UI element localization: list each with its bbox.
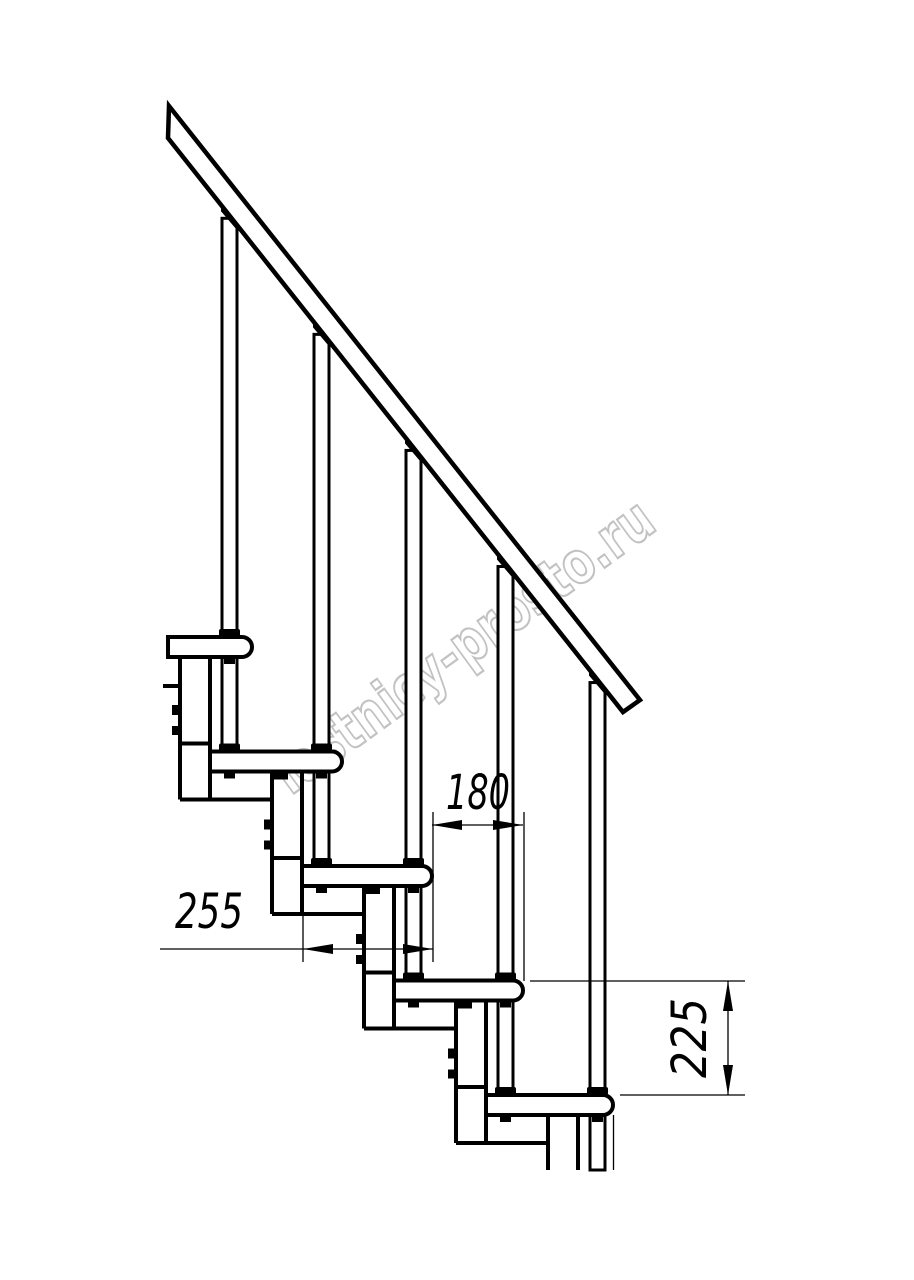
tread [302,866,432,886]
baluster-nut [408,886,419,893]
baluster [222,218,237,751]
side-bolt [264,841,272,850]
tread [394,981,523,1001]
baluster-collar [403,858,424,866]
baluster [498,566,513,1095]
baluster-collar [311,744,332,752]
baluster-collar [403,973,424,981]
baluster-nut [224,772,235,779]
dimension-arrow [723,1065,733,1095]
tread [486,1095,613,1115]
side-bolt [172,726,180,735]
baluster [314,334,329,866]
handrail [168,106,640,712]
side-bolt [356,955,364,964]
side-bolt [172,705,180,715]
baluster-nut [408,1001,419,1008]
dimension-arrow [303,944,333,954]
baluster-nut [592,1115,603,1122]
module-bolt [274,773,288,780]
dimension-label: 255 [175,884,243,940]
dimension-label: 180 [446,765,510,821]
module-bolt [366,887,380,894]
dimension-arrow [723,981,733,1011]
tread [168,637,252,657]
stair-technical-drawing: lestnicy-prosto.ru180255225 [0,0,914,1280]
baluster-collar [311,858,332,866]
tread [210,752,342,772]
dimension-arrow [432,820,462,830]
baluster-collar [495,973,516,981]
baluster-collar [587,1087,608,1095]
side-bolt [264,820,272,830]
side-bolt [448,1049,456,1059]
baluster-collar [495,1087,516,1095]
side-bolt [356,934,364,944]
dimension-label: 225 [662,998,718,1078]
drawing-canvas: lestnicy-prosto.ru180255225 [0,0,914,1280]
baluster-collar [219,744,240,752]
baluster-nut [500,1001,511,1008]
side-bolt [448,1070,456,1079]
baluster [406,450,421,980]
module-bolt [458,1002,472,1009]
baluster-nut [224,657,235,664]
baluster-nut [500,1115,511,1122]
baluster-collar [219,629,240,637]
baluster-nut [316,772,327,779]
baluster-nut [316,886,327,893]
